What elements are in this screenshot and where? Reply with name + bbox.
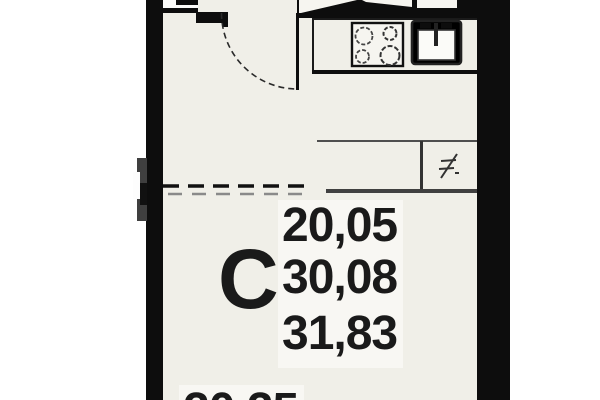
vent-divider-line — [420, 141, 423, 192]
vent-zone-bottom-line — [326, 189, 477, 193]
left-wall — [146, 0, 163, 400]
right-wall — [477, 0, 510, 400]
top-wall-tab — [176, 0, 198, 5]
counter-bottom-line — [312, 70, 477, 74]
area-value-3: 31,83 — [278, 308, 403, 368]
counter-top-line — [312, 18, 477, 20]
floorplan-canvas: С 20,05 30,08 31,83 20,25 — [0, 0, 600, 400]
area-value-2: 30,08 — [278, 252, 403, 312]
wall-niche-dark — [140, 183, 147, 205]
counter-left-edge — [312, 18, 314, 71]
area-value-bottom-clipped: 20,25 — [179, 385, 304, 400]
unit-type-label: С — [218, 237, 279, 321]
kitchen-zone-line — [317, 140, 477, 142]
top-wall-right-band — [297, 0, 477, 18]
top-lintel — [163, 8, 198, 13]
door-leaf — [296, 13, 299, 90]
top-wall-end-cap — [222, 12, 228, 27]
wall-niche-white — [133, 172, 140, 199]
